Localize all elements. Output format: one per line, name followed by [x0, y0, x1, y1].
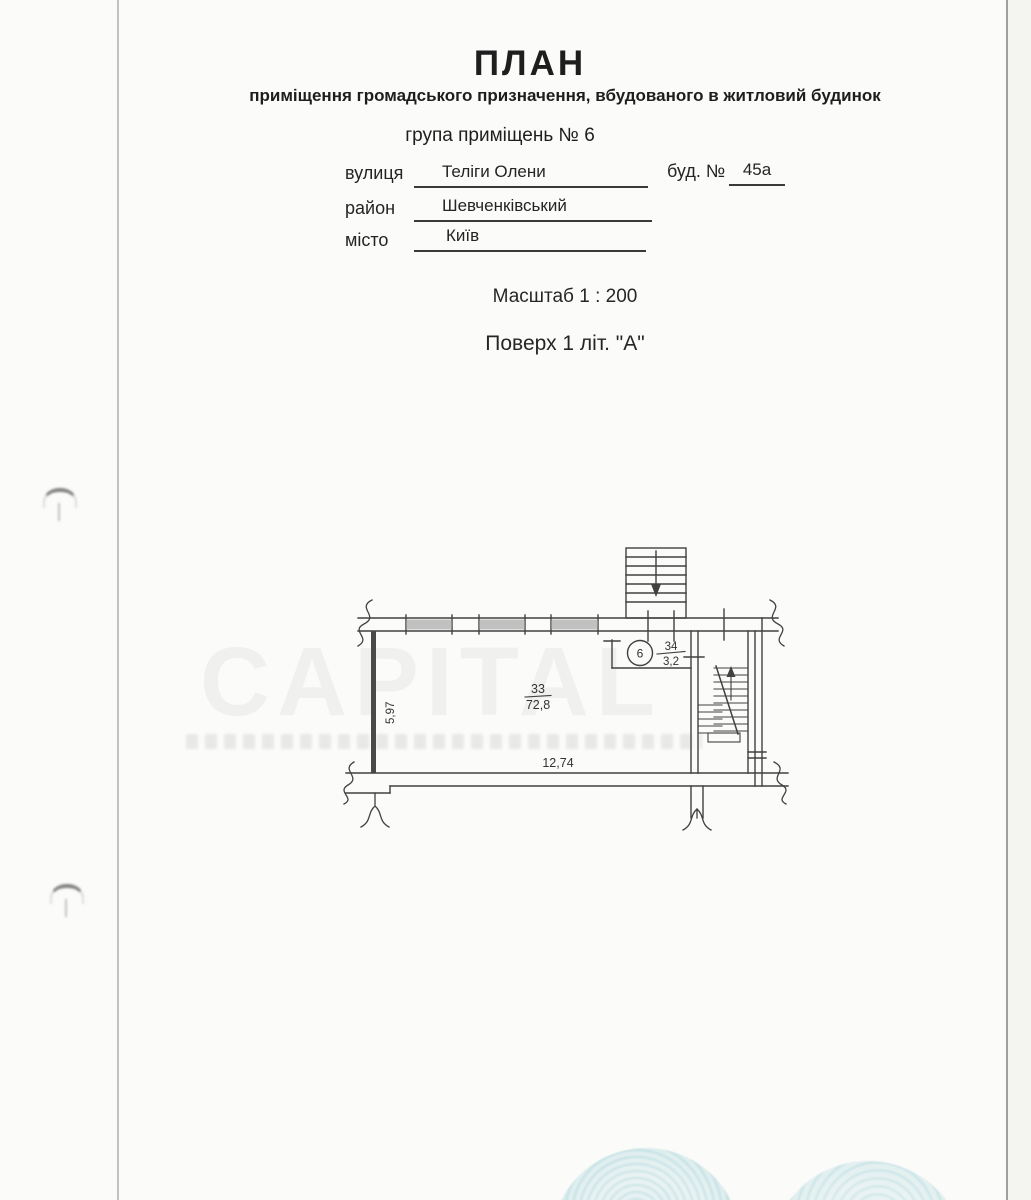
city-field: Київ: [414, 226, 646, 252]
round-stamp-right: [770, 1161, 966, 1200]
window-glazing: [406, 620, 598, 630]
floor-plan: 6 34 3,2 33 72,8 5,97 12,74: [340, 540, 800, 840]
street-value: Теліги Олени: [414, 162, 546, 181]
group-number: 6: [637, 647, 644, 661]
premises-group-line: група приміщень № 6: [185, 125, 815, 147]
building-field: 45а: [729, 160, 785, 186]
floor-line: Поверх 1 літ. "А": [385, 332, 745, 356]
left-wall: [371, 631, 376, 773]
district-field: Шевченківський: [414, 196, 652, 222]
width-dimension: 12,74: [542, 756, 573, 770]
building-value: 45а: [743, 160, 771, 179]
scanned-plan-page: ПЛАН приміщення громадського призначення…: [0, 0, 1031, 1200]
street-label: вулиця: [345, 163, 403, 184]
bottom-wall: [346, 773, 788, 793]
small-room-number: 34: [665, 641, 678, 653]
city-value: Київ: [414, 226, 479, 245]
paper-margin-right: [1008, 0, 1031, 1200]
building-label: буд. №: [667, 161, 725, 182]
small-room-label: 34 3,2: [657, 641, 685, 668]
entrance-arrow-icon: [651, 551, 661, 597]
small-room-area: 3,2: [663, 656, 679, 668]
page-subtitle: приміщення громадського призначення, вбу…: [185, 86, 945, 106]
binder-hole-top: [43, 488, 77, 508]
paper-fold-line-left: [117, 0, 119, 1200]
district-label: район: [345, 198, 395, 219]
staircase: [698, 666, 748, 742]
main-room-area: 72,8: [526, 698, 550, 712]
main-room-label: 33 72,8: [525, 682, 551, 712]
city-label: місто: [345, 230, 388, 251]
stair-shaft-walls: [684, 618, 766, 818]
page-title: ПЛАН: [330, 44, 730, 84]
district-value: Шевченківський: [414, 196, 567, 215]
main-room-number: 33: [531, 682, 545, 696]
depth-dimension: 5,97: [385, 702, 397, 724]
street-field: Теліги Олени: [414, 162, 648, 188]
round-stamp-left: [551, 1148, 741, 1200]
binder-hole-bottom: [50, 884, 84, 904]
scale-line: Масштаб 1 : 200: [385, 286, 745, 308]
group-circle-label: 6: [628, 641, 653, 666]
wall-break-marks: [344, 600, 786, 830]
